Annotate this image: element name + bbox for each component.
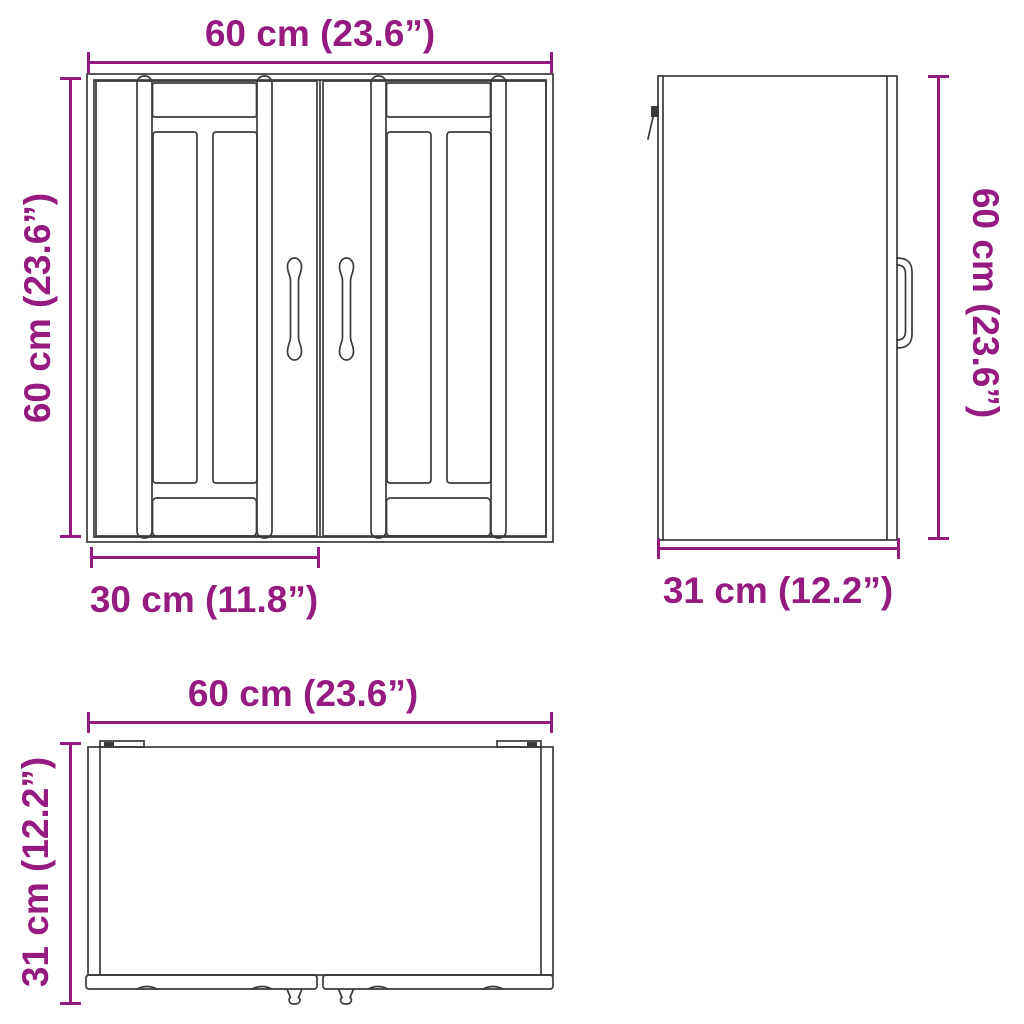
wall-mount-bracket [651, 106, 659, 117]
front-view-drawing [87, 74, 553, 542]
dimension-tick [897, 538, 900, 559]
side-cabinet-body [658, 76, 897, 540]
dimension-tick [60, 535, 81, 538]
door-stile [371, 76, 386, 538]
front-left-door [96, 81, 317, 536]
front-right-door [323, 81, 546, 536]
door-bottom-pane [387, 498, 491, 536]
top-left-door-slab [86, 975, 317, 989]
dimension-tick [90, 547, 93, 568]
top-left-door-knob [287, 989, 302, 1004]
side-view-drawing [648, 76, 912, 540]
dimension-tick [87, 52, 90, 73]
dimension-line [87, 61, 553, 64]
top-right-mount-bracket [527, 742, 537, 747]
door-tall-pane [447, 132, 491, 483]
side-handle-inner-profile [897, 265, 906, 340]
cabinet-line-art [0, 0, 1024, 1024]
wall-mount-bracket-hook [648, 117, 653, 139]
top-view-drawing [86, 741, 553, 1004]
dimension-tick [928, 75, 949, 78]
front-right-door-frame [340, 76, 507, 538]
front-height-label: 60 cm (23.6”) [17, 193, 59, 423]
top-right-door-slab [323, 975, 553, 989]
front-height-dimension [60, 77, 81, 538]
top-depth-label: 31 cm (12.2”) [15, 757, 57, 987]
top-left-mount-bracket [104, 742, 114, 747]
dimension-line [657, 547, 900, 550]
dimension-tick [550, 712, 553, 733]
cabinet-dimension-diagram: 60 cm (23.6”) 60 cm (23.6”) 30 cm (11.8”… [0, 0, 1024, 1024]
dimension-tick [60, 77, 81, 80]
front-width-label: 60 cm (23.6”) [205, 13, 435, 55]
left-door-handle [288, 258, 302, 360]
dimension-tick [657, 538, 660, 559]
door-stile [137, 76, 152, 538]
door-width-dimension [90, 547, 320, 568]
dimension-tick [317, 547, 320, 568]
top-depth-dimension [60, 742, 81, 1005]
dimension-line [937, 75, 940, 540]
door-top-pane [153, 83, 257, 117]
side-height-dimension [928, 75, 949, 540]
door-stile [257, 76, 272, 538]
dimension-line [90, 556, 320, 559]
door-tall-pane [387, 132, 431, 483]
door-stile [491, 76, 506, 538]
side-height-label: 60 cm (23.6”) [964, 188, 1006, 418]
front-left-door-frame [137, 76, 302, 538]
dimension-line [69, 742, 72, 1005]
dimension-line [69, 77, 72, 538]
dimension-tick [928, 537, 949, 540]
dimension-tick [87, 712, 90, 733]
dimension-tick [550, 52, 553, 73]
door-width-label: 30 cm (11.8”) [90, 579, 318, 621]
dimension-line [87, 721, 553, 724]
top-right-door-knob [339, 989, 354, 1004]
top-cabinet-body [88, 747, 553, 975]
door-tall-pane [213, 132, 257, 483]
door-bottom-pane [153, 498, 257, 536]
top-width-label: 60 cm (23.6”) [188, 673, 418, 715]
right-door-handle [340, 258, 354, 360]
side-depth-dimension [657, 538, 900, 559]
door-tall-pane [153, 132, 197, 483]
dimension-tick [60, 742, 81, 745]
top-width-dimension [87, 712, 553, 733]
dimension-tick [60, 1002, 81, 1005]
front-width-dimension [87, 52, 553, 73]
side-depth-label: 31 cm (12.2”) [663, 570, 893, 612]
door-top-pane [387, 83, 491, 117]
